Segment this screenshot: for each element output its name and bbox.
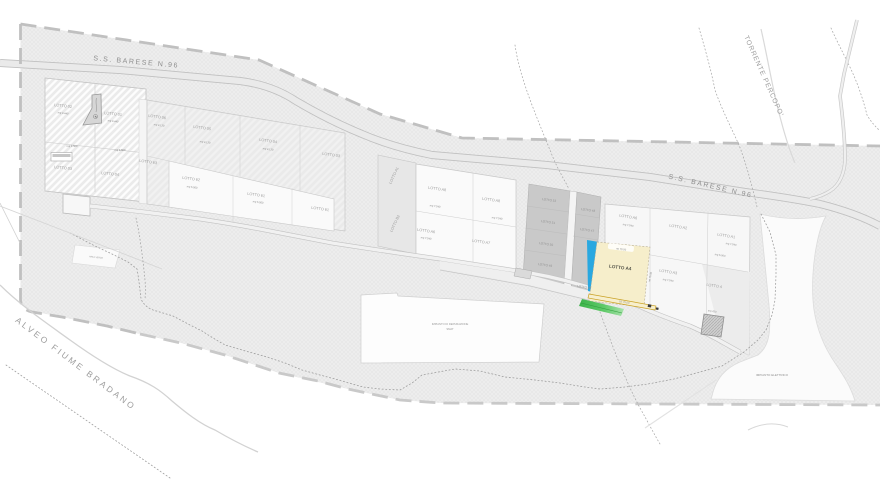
svg-text:mq 3.500: mq 3.500 (115, 148, 126, 152)
svg-text:mq 3.500: mq 3.500 (67, 144, 78, 148)
svg-text:IMPIANTO ELETTRICO: IMPIANTO ELETTRICO (756, 373, 789, 377)
svg-text:SMAT: SMAT (446, 327, 454, 331)
svg-text:IMPIANTO DI DEPURAZIONE: IMPIANTO DI DEPURAZIONE (432, 322, 469, 326)
